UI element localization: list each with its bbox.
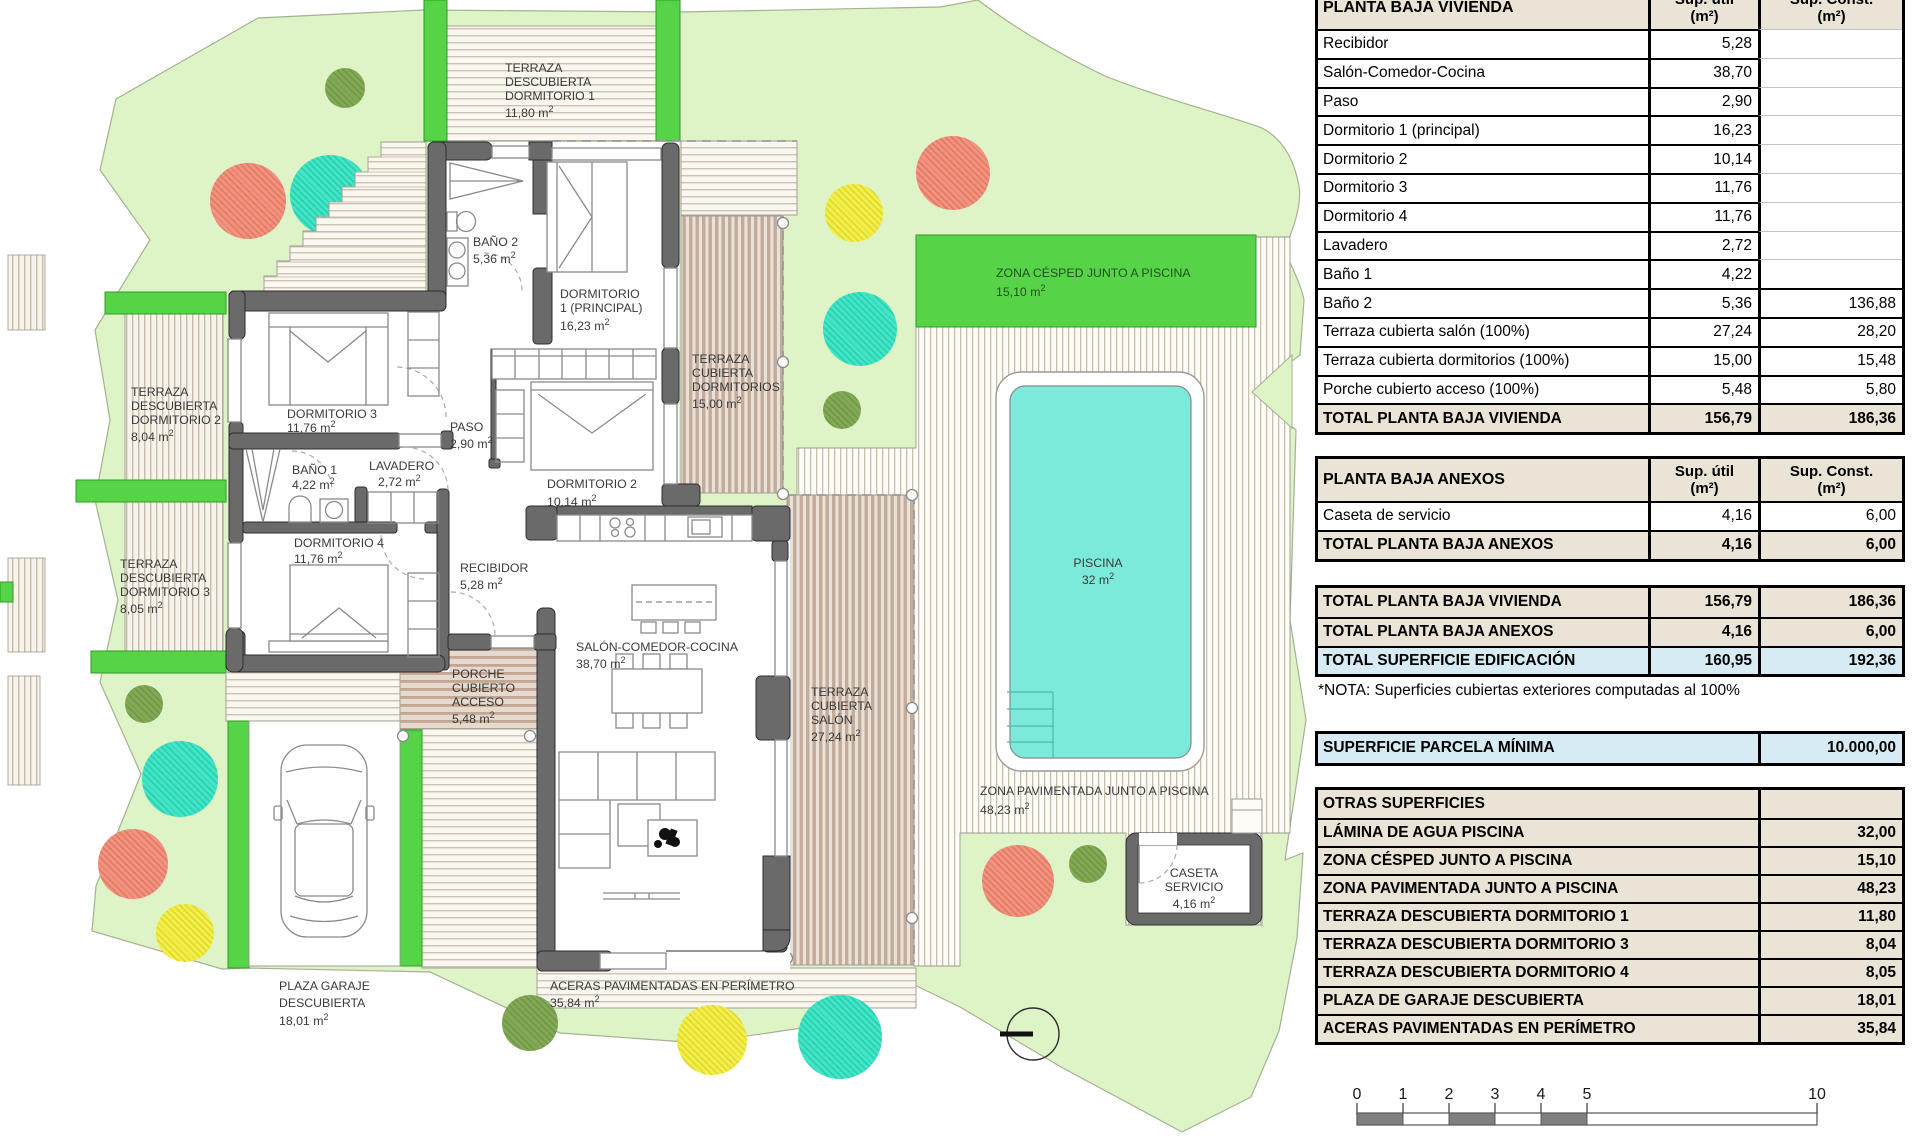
svg-text:CUBIERTA: CUBIERTA: [692, 366, 754, 380]
svg-text:ACERAS PAVIMENTADAS EN PERÍMET: ACERAS PAVIMENTADAS EN PERÍMETRO: [550, 978, 795, 993]
svg-text:5,48 m2: 5,48 m2: [452, 710, 495, 726]
svg-text:ZONA PAVIMENTADA JUNTO A PISCI: ZONA PAVIMENTADA JUNTO A PISCINA: [980, 784, 1209, 798]
svg-text:5,36 m2: 5,36 m2: [473, 250, 516, 266]
svg-text:38,70 m2: 38,70 m2: [576, 655, 625, 671]
svg-text:TERRAZA: TERRAZA: [811, 685, 869, 699]
svg-text:ZONA CÉSPED JUNTO A PISCINA: ZONA CÉSPED JUNTO A PISCINA: [996, 265, 1191, 280]
svg-text:DORMITORIO 2: DORMITORIO 2: [547, 477, 637, 491]
svg-text:DESCUBIERTA: DESCUBIERTA: [505, 75, 592, 89]
svg-text:DORMITORIO 2: DORMITORIO 2: [131, 413, 221, 427]
svg-text:BAÑO 2: BAÑO 2: [473, 235, 518, 249]
svg-text:PISCINA: PISCINA: [1073, 556, 1123, 570]
svg-text:16,23 m2: 16,23 m2: [560, 317, 609, 333]
svg-text:CUBIERTO: CUBIERTO: [452, 681, 515, 695]
svg-text:1: 1: [1399, 1086, 1408, 1103]
svg-text:SALÓN-COMEDOR-COCINA: SALÓN-COMEDOR-COCINA: [576, 639, 739, 654]
svg-text:TERRAZA: TERRAZA: [505, 61, 563, 75]
svg-text:8,04 m2: 8,04 m2: [131, 428, 174, 444]
svg-text:2,90 m2: 2,90 m2: [450, 435, 493, 451]
svg-text:TERRAZA: TERRAZA: [131, 385, 189, 399]
svg-text:1 (PRINCIPAL): 1 (PRINCIPAL): [560, 301, 642, 315]
svg-text:11,80 m2: 11,80 m2: [505, 104, 554, 120]
svg-text:TERRAZA: TERRAZA: [692, 352, 750, 366]
svg-text:DORMITORIO 1: DORMITORIO 1: [505, 89, 595, 103]
svg-text:15,00 m2: 15,00 m2: [692, 395, 741, 411]
svg-text:3: 3: [1491, 1086, 1500, 1103]
svg-text:2,72 m2: 2,72 m2: [378, 473, 421, 489]
svg-text:DESCUBIERTA: DESCUBIERTA: [120, 571, 207, 585]
svg-text:4: 4: [1537, 1086, 1546, 1103]
svg-text:PORCHE: PORCHE: [452, 667, 505, 681]
svg-text:DESCUBIERTA: DESCUBIERTA: [279, 996, 366, 1010]
svg-text:0: 0: [1353, 1086, 1362, 1103]
svg-text:18,01 m2: 18,01 m2: [279, 1012, 328, 1028]
svg-text:ACCESO: ACCESO: [452, 695, 504, 709]
svg-text:5: 5: [1583, 1086, 1592, 1103]
svg-text:4,22 m2: 4,22 m2: [292, 476, 335, 492]
svg-text:27,24 m2: 27,24 m2: [811, 728, 860, 744]
svg-text:48,23 m2: 48,23 m2: [980, 801, 1029, 817]
svg-text:PLAZA GARAJE: PLAZA GARAJE: [279, 979, 370, 993]
svg-text:CASETA: CASETA: [1170, 866, 1219, 880]
svg-text:DESCUBIERTA: DESCUBIERTA: [131, 399, 218, 413]
svg-text:35,84 m2: 35,84 m2: [550, 994, 599, 1010]
svg-text:2: 2: [1445, 1086, 1454, 1103]
svg-text:RECIBIDOR: RECIBIDOR: [460, 561, 528, 575]
svg-text:DORMITORIOS: DORMITORIOS: [692, 380, 780, 394]
svg-text:11,76 m2: 11,76 m2: [287, 419, 336, 435]
svg-text:DORMITORIO 4: DORMITORIO 4: [294, 536, 384, 550]
svg-text:TERRAZA: TERRAZA: [120, 557, 178, 571]
svg-text:15,10 m2: 15,10 m2: [996, 283, 1045, 299]
svg-text:PASO: PASO: [450, 420, 483, 434]
svg-text:DORMITORIO 3: DORMITORIO 3: [120, 585, 210, 599]
svg-text:DORMITORIO: DORMITORIO: [560, 287, 640, 301]
svg-text:4,16 m2: 4,16 m2: [1173, 895, 1216, 911]
svg-text:10: 10: [1808, 1086, 1826, 1103]
svg-text:5,28 m2: 5,28 m2: [460, 576, 503, 592]
svg-text:BAÑO 1: BAÑO 1: [292, 463, 337, 477]
svg-text:SERVICIO: SERVICIO: [1165, 880, 1224, 894]
svg-text:LAVADERO: LAVADERO: [369, 459, 434, 473]
svg-text:10,14 m2: 10,14 m2: [547, 493, 596, 509]
svg-text:8,05 m2: 8,05 m2: [120, 600, 163, 616]
svg-text:SALÓN: SALÓN: [811, 712, 853, 727]
svg-text:11,76 m2: 11,76 m2: [294, 550, 343, 566]
svg-text:CUBIERTA: CUBIERTA: [811, 699, 873, 713]
